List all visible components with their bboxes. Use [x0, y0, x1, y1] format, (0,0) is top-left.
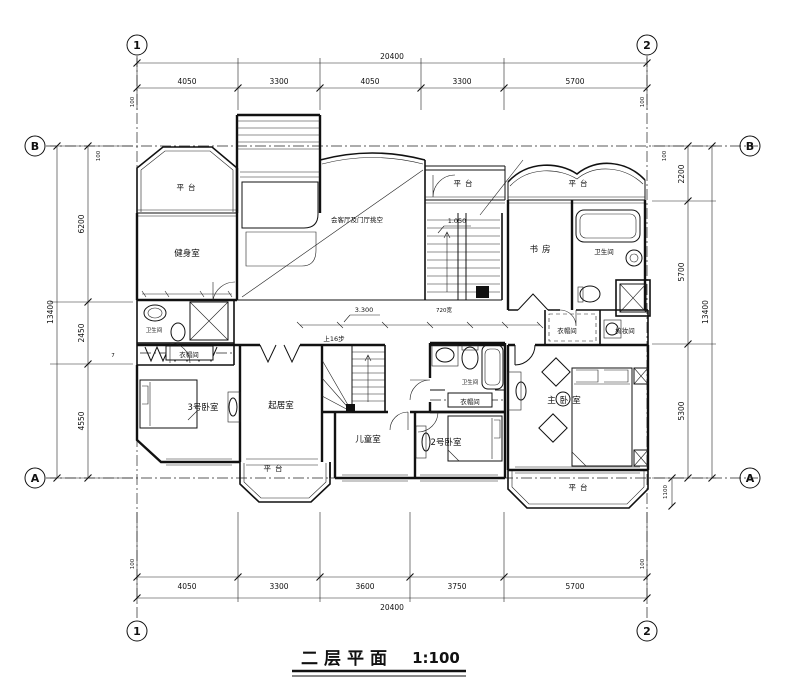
armchair-1 [542, 358, 570, 386]
dim-top-offset-right: 100 [640, 96, 646, 107]
room-label-terrace-top-right: 平台 [569, 178, 592, 188]
dim-bottom-2: 3300 [269, 582, 288, 591]
dim-left-offset-top: 100 [96, 150, 102, 161]
dim-top-offset-left: 100 [130, 96, 136, 107]
desk-master [508, 372, 521, 410]
dim-left-total: 13400 [46, 300, 55, 324]
drawing-scale: 1:100 [412, 649, 460, 667]
title-block: 二层平面 1:100 [292, 649, 466, 676]
dim-right-2: 5700 [677, 262, 686, 281]
dim-right-3: 5300 [677, 401, 686, 420]
room-label-kids: 儿童室 [355, 434, 381, 445]
dim-right-offset-top: 100 [662, 150, 668, 161]
stair-newel [476, 286, 489, 298]
room-label-games: 健身室 [174, 248, 200, 259]
dim-bottom-5: 5700 [565, 582, 584, 591]
room-label-family: 起居室 [268, 400, 294, 411]
room-label-bath-center: 卫生间 [462, 378, 479, 386]
room-label-terrace-bottom-center: 平台 [264, 463, 287, 473]
toilet-left [171, 323, 185, 341]
dim-right-1: 2200 [677, 164, 686, 183]
dim-bottom-total: 20400 [380, 603, 404, 612]
room-label-study: 书房 [529, 244, 554, 255]
room-label-master: 主卧室 [547, 395, 585, 406]
axis-bubble-2-bottom: 2 [643, 625, 651, 638]
axis-bubble-A-left: A [31, 472, 40, 485]
void-top-wall [320, 153, 425, 160]
dim-top-total: 20400 [380, 52, 404, 61]
axis-bubble-A-right: A [746, 472, 755, 485]
room-label-terrace-bottom-right: 平台 [569, 482, 592, 492]
axis-bubble-2-top: 2 [643, 39, 651, 52]
dim-top-1: 4050 [177, 77, 196, 86]
room-label-terrace-mid: 平台 [454, 178, 477, 188]
sink-center [436, 348, 454, 362]
room-label-bath-top-right: 卫生间 [594, 247, 614, 256]
grid-axes: 1 2 1 2 B B A A [25, 35, 760, 641]
dim-top-2: 3300 [269, 77, 288, 86]
dim-bottom-offset-left: 100 [130, 558, 136, 569]
dim-left-2: 2450 [77, 323, 86, 342]
dim-left-1: 6200 [77, 214, 86, 233]
winder-stair-walls [322, 345, 385, 412]
dim-left-3: 4550 [77, 411, 86, 430]
axis-bubble-1-top: 1 [133, 39, 141, 52]
floor-plan-drawing: 1 2 1 2 B B A A 20400 4050 3300 4050 330… [0, 0, 800, 699]
dim-left-note: 7 [111, 353, 115, 359]
winder-newel [346, 404, 355, 412]
axis-bubble-B-right: B [746, 140, 754, 153]
dim-top-4: 3300 [452, 77, 471, 86]
dresser-bedroom3 [229, 398, 237, 416]
room-label-void: 会客厅及门厅挑空 [331, 215, 384, 224]
note-stair-width: 720宽 [436, 306, 452, 314]
terrace-top-left-wall [137, 147, 237, 213]
dim-bottom-offset-right: 100 [640, 558, 646, 569]
fixtures-furniture [140, 210, 650, 466]
axis-bubble-1-bottom: 1 [133, 625, 141, 638]
sink-left [144, 305, 166, 321]
room-label-closet-left: 衣帽间 [179, 350, 199, 359]
level-second-floor: 3.300 [355, 306, 374, 314]
dim-bottom-3: 3600 [355, 582, 374, 591]
master-walls [508, 345, 648, 470]
room-labels: 平台 健身室 会客厅及门厅挑空 平台 平台 书房 卫生间 卫生间 衣帽间 3号卧… [146, 178, 635, 492]
dim-top-3: 4050 [360, 77, 379, 86]
walls [137, 115, 648, 508]
dim-right-total: 13400 [701, 300, 710, 324]
room-label-terrace-top-left: 平台 [177, 182, 200, 192]
drawing-title: 二层平面 [301, 649, 393, 669]
room-label-dressing: 梳妆间 [615, 326, 635, 335]
dim-bottom-1: 4050 [177, 582, 196, 591]
note-stair-up: 上16步 [323, 334, 345, 343]
level-stair-landing: 1.050 [448, 217, 467, 225]
room-label-closet-center: 衣帽间 [460, 397, 480, 406]
room-label-bath-left: 卫生间 [146, 326, 163, 334]
floor-plan-sheet: 1 2 1 2 B B A A 20400 4050 3300 4050 330… [0, 0, 800, 699]
dim-right-below-a: 1100 [663, 485, 669, 499]
room-label-bedroom2: 2号卧室 [431, 437, 462, 448]
bathtub-top-right [576, 210, 640, 242]
dim-top-5: 5700 [565, 77, 584, 86]
entry-block-walls [237, 115, 320, 213]
room-label-closet-right: 衣帽间 [557, 326, 577, 335]
dim-bottom-4: 3750 [447, 582, 466, 591]
room-label-bedroom3: 3号卧室 [188, 402, 219, 413]
sink-top-right [626, 250, 642, 266]
axis-bubble-B-left: B [31, 140, 39, 153]
bedrooms-walls [322, 412, 505, 478]
bed-master [572, 368, 632, 466]
armchair-2 [539, 414, 567, 442]
